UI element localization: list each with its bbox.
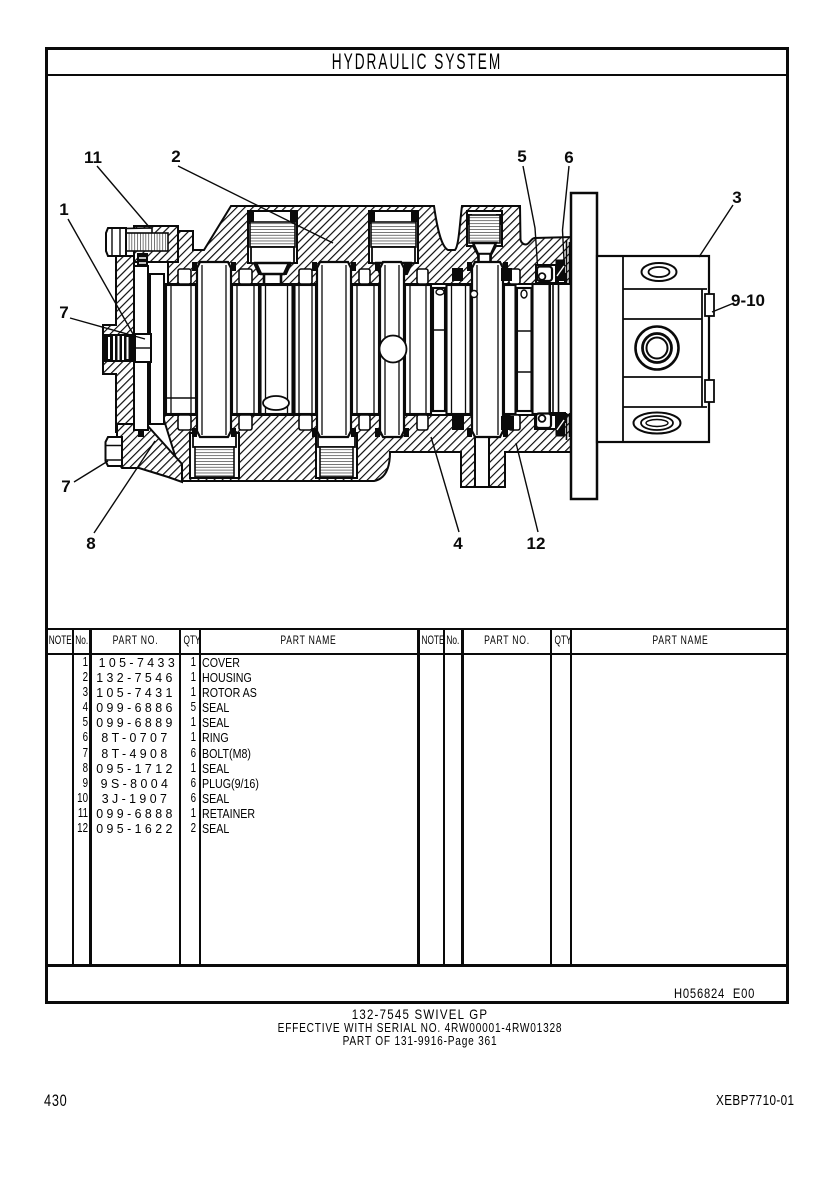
svg-text:6: 6 [564, 148, 573, 167]
svg-text:5: 5 [517, 147, 526, 166]
svg-text:4: 4 [453, 534, 463, 553]
svg-text:8: 8 [86, 534, 95, 553]
svg-text:12: 12 [527, 534, 546, 553]
svg-text:11: 11 [84, 148, 102, 167]
svg-text:7: 7 [61, 477, 70, 496]
svg-text:2: 2 [171, 147, 180, 166]
svg-text:7: 7 [59, 303, 68, 322]
svg-text:1: 1 [59, 200, 68, 219]
svg-text:3: 3 [732, 188, 741, 207]
svg-text:9-10: 9-10 [731, 291, 765, 310]
